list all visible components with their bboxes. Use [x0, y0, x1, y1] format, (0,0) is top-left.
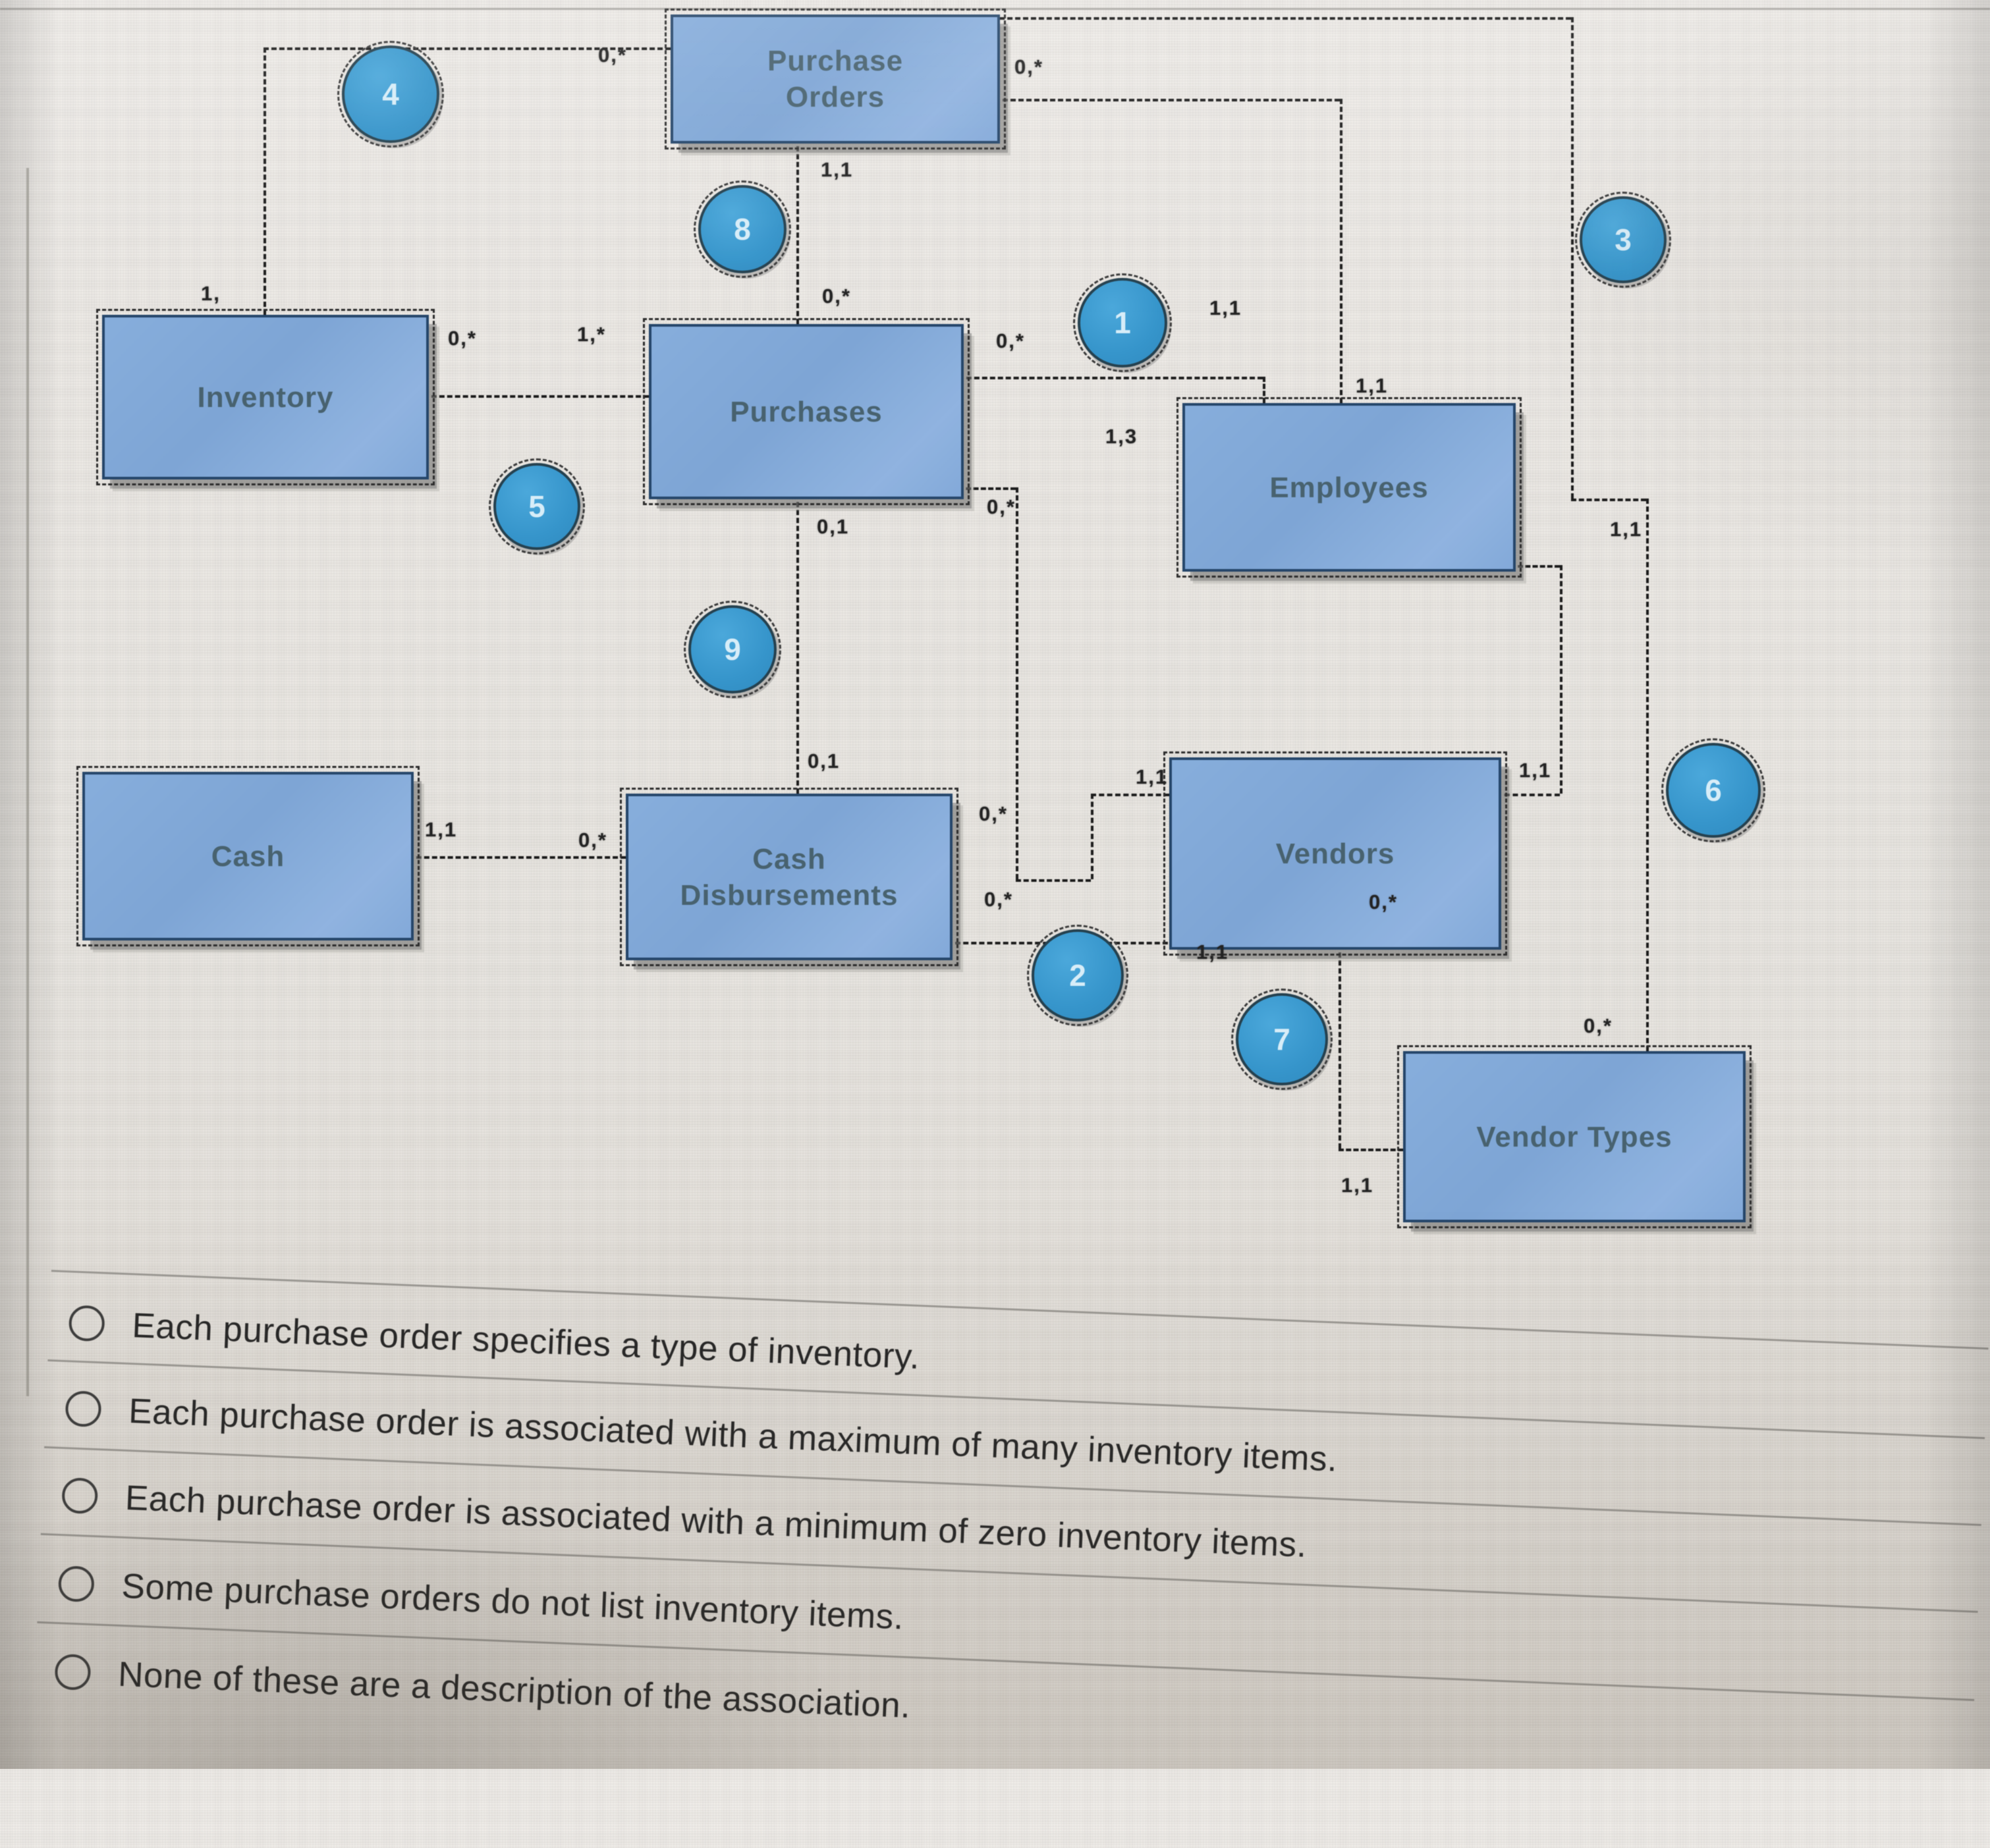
screen-edge-line: [0, 8, 1990, 10]
multiplicity-label: 1,1: [1610, 518, 1642, 541]
node-number: 6: [1705, 773, 1722, 808]
connector-segment: [796, 494, 799, 794]
node-circle-3: 3: [1580, 196, 1667, 283]
multiplicity-label: 1,1: [1356, 374, 1388, 398]
entity-label: Purchases: [730, 394, 883, 430]
entity-purchases: Purchases: [649, 324, 964, 499]
entity-label: Purchase Orders: [767, 43, 903, 115]
entity-vendors: Vendors: [1169, 757, 1501, 950]
connector-segment: [1510, 565, 1560, 568]
option-label: Some purchase orders do not list invento…: [121, 1565, 905, 1637]
node-circle-1: 1: [1078, 278, 1167, 367]
multiplicity-label: 0,*: [1014, 55, 1043, 79]
multiplicity-label: 0,*: [1369, 890, 1398, 914]
multiplicity-label: 0,*: [598, 43, 627, 67]
multiplicity-label: 1,1: [1196, 940, 1229, 964]
multiplicity-label: 0,*: [984, 888, 1013, 911]
connector-segment: [424, 395, 649, 398]
entity-cash: Cash: [82, 772, 414, 940]
page-edge-line: [26, 168, 29, 1396]
entity-label: Vendor Types: [1476, 1119, 1672, 1155]
node-number: 9: [724, 632, 741, 667]
answer-options: Each purchase order specifies a type of …: [0, 1268, 1989, 1848]
multiplicity-label: 1,1: [1209, 296, 1242, 320]
entity-label: Employees: [1269, 470, 1428, 506]
entity-purchase-orders: Purchase Orders: [671, 14, 1000, 144]
multiplicity-label: 1,1: [821, 158, 853, 182]
connector-segment: [1560, 565, 1562, 794]
connector-segment: [1091, 794, 1093, 879]
entity-employees: Employees: [1182, 403, 1516, 572]
multiplicity-label: 0,1: [808, 749, 840, 773]
connector-segment: [1263, 377, 1265, 403]
node-number: 5: [528, 489, 545, 524]
option-label: None of these are a description of the a…: [117, 1654, 911, 1726]
multiplicity-label: 0,1: [817, 515, 849, 539]
multiplicity-label: 1,1: [1341, 1174, 1373, 1197]
radio-button[interactable]: [61, 1477, 98, 1514]
multiplicity-label: 1,3: [1105, 425, 1138, 448]
entity-label: Cash Disbursements: [680, 841, 898, 913]
node-circle-2: 2: [1032, 929, 1124, 1021]
radio-button[interactable]: [58, 1565, 95, 1602]
multiplicity-label: 0,*: [822, 285, 851, 308]
connector-segment: [1339, 1149, 1403, 1151]
node-number: 7: [1273, 1021, 1290, 1057]
node-number: 3: [1615, 222, 1632, 258]
node-circle-6: 6: [1666, 743, 1761, 838]
entity-vendor-types: Vendor Types: [1403, 1051, 1746, 1222]
connector-segment: [263, 47, 266, 315]
multiplicity-label: 1,1: [425, 818, 457, 842]
node-circle-7: 7: [1236, 993, 1328, 1085]
node-number: 1: [1114, 305, 1131, 340]
connector-segment: [796, 138, 799, 324]
connector-segment: [1646, 499, 1649, 1051]
entity-label: Inventory: [197, 379, 333, 416]
node-circle-5: 5: [493, 463, 580, 550]
node-number: 2: [1069, 958, 1086, 993]
connector-segment: [1091, 794, 1169, 796]
node-number: 8: [734, 211, 751, 247]
radio-button[interactable]: [69, 1305, 105, 1342]
node-circle-4: 4: [342, 45, 439, 143]
radio-button[interactable]: [54, 1654, 91, 1691]
entity-inventory: Inventory: [102, 315, 429, 479]
multiplicity-label: 1,*: [577, 323, 606, 346]
connector-segment: [958, 377, 1263, 379]
option-label: Each purchase order specifies a type of …: [131, 1305, 920, 1377]
multiplicity-label: 0,*: [996, 329, 1025, 353]
connector-segment: [1016, 879, 1091, 882]
rea-diagram: Purchase OrdersInventoryPurchasesEmploye…: [0, 0, 1990, 1350]
multiplicity-label: 0,*: [987, 495, 1016, 519]
entity-cash-disbursements: Cash Disbursements: [626, 794, 953, 960]
multiplicity-label: 0,*: [448, 327, 477, 350]
multiplicity-label: 0,*: [578, 829, 607, 852]
connector-segment: [1340, 99, 1342, 403]
node-circle-9: 9: [688, 605, 777, 693]
connector-segment: [958, 487, 1016, 490]
connector-segment: [1571, 17, 1574, 499]
connector-segment: [408, 856, 626, 859]
entity-label: Cash: [211, 838, 285, 875]
connector-segment: [1571, 499, 1646, 501]
connector-segment: [1016, 487, 1018, 879]
multiplicity-label: 0,*: [979, 802, 1008, 826]
entity-label: Vendors: [1276, 836, 1395, 872]
node-circle-8: 8: [698, 185, 787, 273]
radio-button[interactable]: [65, 1390, 101, 1427]
multiplicity-label: 0,*: [1584, 1014, 1613, 1038]
connector-segment: [995, 99, 1340, 101]
connector-segment: [1496, 794, 1560, 796]
multiplicity-label: 1,1: [1519, 759, 1551, 782]
node-number: 4: [382, 76, 399, 112]
multiplicity-label: 1,: [201, 282, 221, 306]
multiplicity-label: 1,1: [1136, 765, 1168, 789]
connector-segment: [1339, 944, 1341, 1149]
